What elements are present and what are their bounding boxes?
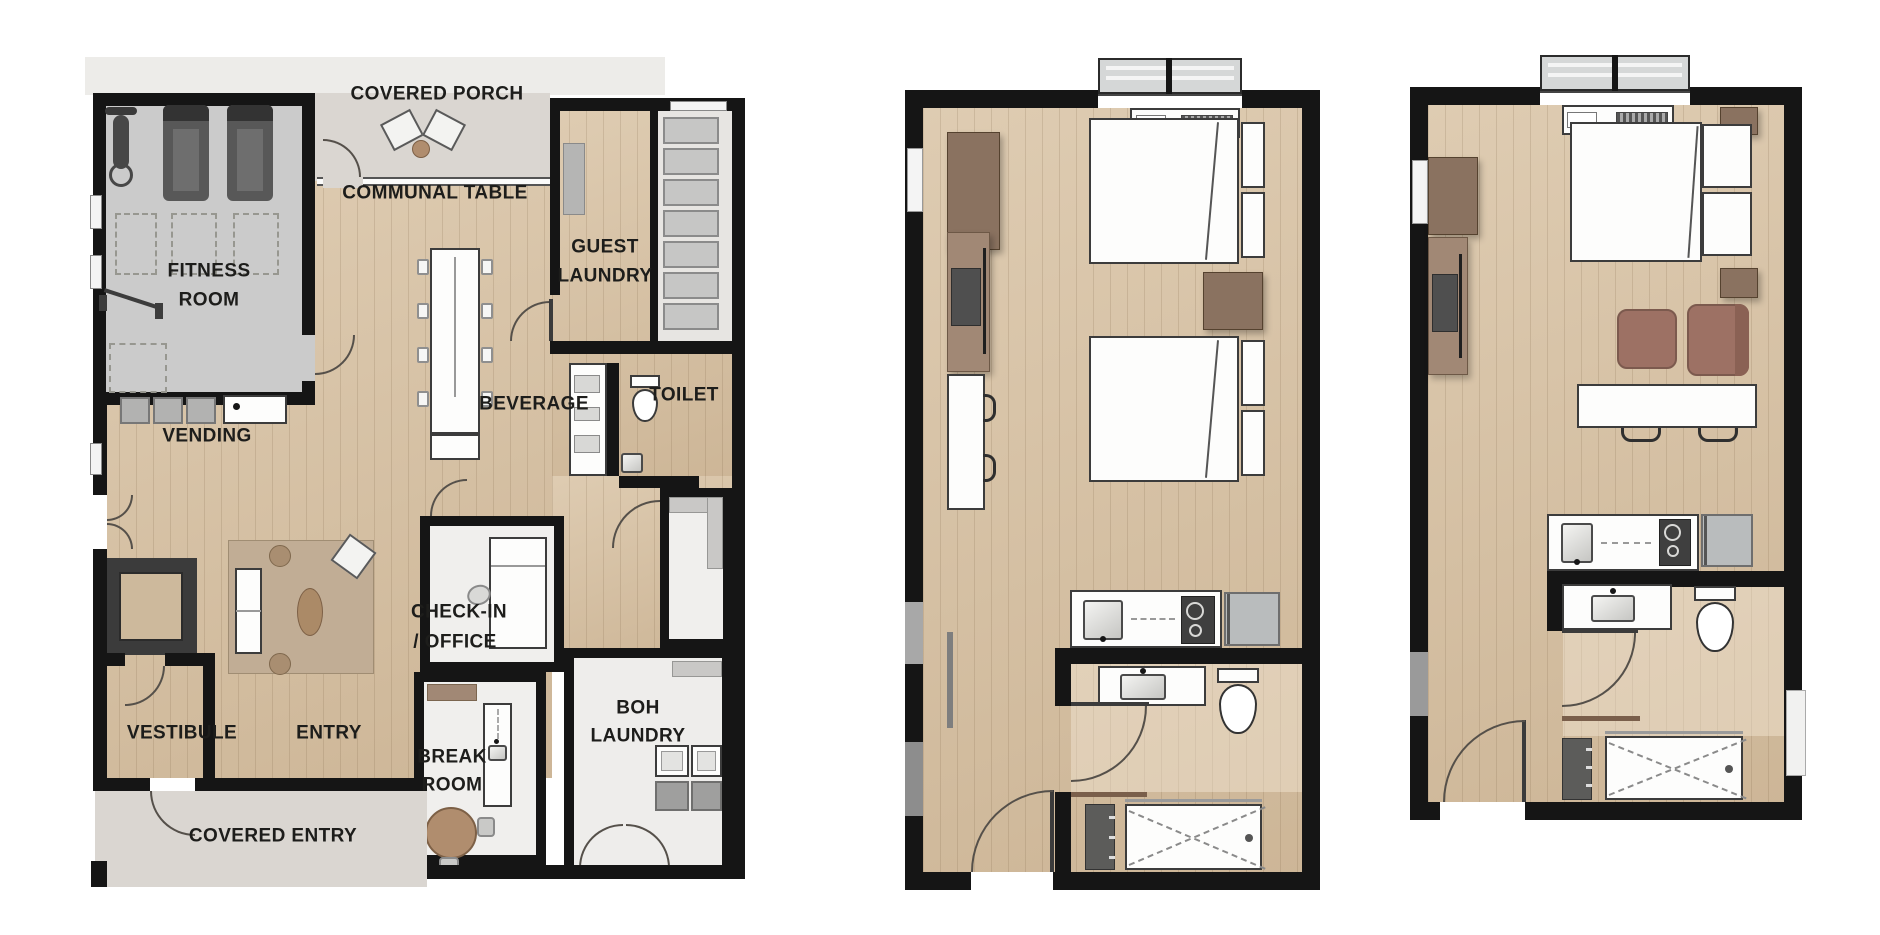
room-label-guest-laundry-line2: LAUNDRY	[558, 267, 653, 288]
vending-machine-icon	[186, 397, 216, 424]
wall	[1055, 792, 1071, 872]
room-label-check-in-line1: CHECK-IN	[411, 603, 507, 624]
bar-counter	[947, 374, 985, 510]
window-mullion	[1166, 58, 1172, 94]
headboard	[1702, 192, 1752, 256]
toilet-tank	[1694, 586, 1736, 601]
room-label-beverage: BEVERAGE	[479, 395, 589, 416]
room-label-toilet: TOILET	[649, 386, 719, 407]
tv-icon	[951, 268, 981, 326]
barbell-plate-icon	[99, 295, 107, 311]
room-label-vestibule: VESTIBULE	[127, 724, 237, 745]
laundry-door-leaf	[549, 299, 553, 341]
shelf-tick	[1586, 766, 1592, 769]
wall	[607, 363, 619, 476]
stool-icon	[1698, 428, 1738, 442]
room-label-check-in-line2: / OFFICE	[413, 633, 496, 654]
toilet-room-sink	[621, 453, 643, 473]
wall	[414, 865, 745, 879]
stool-icon	[983, 454, 996, 482]
pouf-icon	[269, 653, 291, 675]
fridge-handle-icon	[1227, 594, 1230, 644]
community-building-plan: COVERED PORCH COMMUNAL TABLE FITNESS ROO…	[85, 45, 745, 917]
room-label-covered-porch: COVERED PORCH	[350, 85, 523, 106]
wall	[95, 778, 150, 791]
ice-machine-counter	[223, 395, 287, 424]
room-label-vending: VENDING	[162, 427, 251, 448]
shower	[1125, 804, 1262, 870]
wall	[905, 872, 971, 890]
treadmill-belt-icon	[237, 129, 263, 191]
vending-machine-icon	[120, 397, 150, 424]
room-label-fitness-room-line1: FITNESS	[167, 262, 250, 283]
nightstand	[1203, 272, 1263, 330]
mini-fridge-icon	[1224, 592, 1280, 646]
dining-chair	[417, 303, 429, 319]
kitchen-sink	[1083, 600, 1123, 640]
dining-chair	[417, 347, 429, 363]
washer-icon	[663, 117, 719, 144]
shower-glass-line	[1125, 799, 1262, 802]
shower	[1605, 736, 1743, 800]
wall	[1525, 802, 1802, 820]
communal-table-bench	[430, 434, 480, 460]
threshold	[1071, 792, 1147, 797]
headboard	[1702, 124, 1752, 188]
dryer-icon	[663, 241, 719, 268]
dryer-icon	[691, 781, 722, 811]
tv-icon	[1432, 274, 1458, 332]
room-label-boh-laundry-line2: LAUNDRY	[591, 727, 686, 748]
dryer-icon	[663, 210, 719, 237]
room-label-communal-table: COMMUNAL TABLE	[342, 184, 527, 205]
sofa-cushion-line	[236, 610, 261, 612]
room-label-break-room-line1: BREAK	[417, 748, 487, 769]
wall-louver	[905, 602, 923, 664]
window-glazing	[907, 148, 923, 212]
dining-chair	[481, 303, 493, 319]
window-glazing	[670, 101, 727, 111]
exercise-bike-handle-icon	[105, 107, 137, 115]
room-label-boh-laundry-line1: BOH	[616, 699, 659, 720]
wall	[1055, 648, 1320, 664]
folding-counter	[563, 143, 585, 215]
wall	[1302, 90, 1320, 890]
shelf-tick	[1586, 784, 1592, 787]
room-label-break-room-line2: ROOM	[422, 776, 483, 797]
vanity-sink	[1120, 674, 1166, 700]
headboard	[1241, 410, 1265, 476]
wall	[1055, 648, 1071, 706]
shower-glass-line	[1605, 731, 1743, 734]
vanity-sink	[1591, 595, 1635, 622]
mirror-strip	[947, 632, 953, 728]
toilet-tank	[1217, 668, 1259, 683]
vending-machine-icon	[153, 397, 183, 424]
faucet-icon	[494, 739, 499, 744]
exercise-bike-wheel-icon	[109, 163, 133, 187]
wall	[1547, 571, 1563, 631]
faucet-icon	[1140, 668, 1146, 674]
exterior-shutter	[1786, 690, 1806, 776]
burner-icon	[1664, 524, 1681, 541]
bench-clearance	[109, 343, 167, 393]
window-glazing	[90, 443, 102, 475]
wall	[619, 476, 699, 488]
faucet-icon	[1574, 559, 1580, 565]
shower-drain-icon	[1725, 765, 1733, 773]
washer-door-icon	[661, 751, 683, 771]
dryer-icon	[663, 303, 719, 330]
burner-icon	[1189, 624, 1202, 637]
dining-chair	[417, 391, 429, 407]
utility-shaft-interior	[119, 572, 183, 641]
wall	[1410, 87, 1540, 105]
pouf-icon	[269, 545, 291, 567]
porch-table	[412, 140, 430, 158]
king-guestroom-plan	[1395, 42, 1810, 887]
fridge-handle-icon	[1704, 516, 1707, 565]
headboard	[1241, 122, 1265, 188]
break-sink	[488, 745, 507, 761]
break-table	[425, 807, 477, 859]
shelf-tick	[1109, 856, 1115, 859]
double-queen-guestroom-plan	[893, 42, 1340, 912]
wall	[905, 90, 1098, 108]
shower-drain-icon	[1245, 834, 1253, 842]
bar-table	[1577, 384, 1757, 428]
barbell-plate-icon	[155, 303, 163, 319]
stool-icon	[983, 394, 996, 422]
headboard	[1241, 340, 1265, 406]
wall-louver	[1410, 652, 1428, 716]
threshold	[1562, 716, 1640, 721]
counter-dash-line	[497, 709, 499, 739]
lounge-chair-back	[1735, 304, 1749, 376]
treadmill-hood-icon	[227, 105, 273, 121]
entrance-door-gap	[93, 495, 107, 549]
burner-icon	[1186, 602, 1204, 620]
coffee-machine-icon	[574, 375, 600, 393]
headboard	[1241, 192, 1265, 258]
break-shelf	[427, 684, 477, 701]
check-in-desk	[489, 537, 547, 649]
fitness-door-gap	[302, 335, 315, 381]
faucet-icon	[1100, 636, 1106, 642]
treadmill-belt-icon	[173, 129, 199, 191]
exercise-bike-icon	[113, 115, 129, 169]
wall	[650, 111, 658, 341]
shelf-tick	[1109, 816, 1115, 819]
coffee-machine-icon	[574, 435, 600, 453]
room-label-entry: ENTRY	[296, 724, 362, 745]
coffee-table	[297, 588, 323, 636]
washer-icon	[663, 179, 719, 206]
treadmill-hood-icon	[163, 105, 209, 121]
work-counter	[707, 497, 723, 569]
dining-chair	[481, 347, 493, 363]
mini-fridge-icon	[1701, 514, 1753, 567]
wall	[1053, 872, 1320, 890]
dresser	[1428, 157, 1478, 235]
lounge-chair	[1617, 309, 1677, 369]
kitchen-sink	[1561, 523, 1593, 563]
room-label-covered-entry: COVERED ENTRY	[189, 827, 357, 848]
burner-icon	[1667, 545, 1679, 557]
window-mullion	[1612, 55, 1618, 91]
dining-chair	[417, 259, 429, 275]
ice-machine-icon	[233, 403, 240, 410]
window-glazing	[1412, 160, 1428, 224]
washer-door-icon	[697, 751, 716, 771]
nightstand	[1720, 268, 1758, 298]
window-glazing	[90, 255, 102, 289]
dryer-icon	[655, 781, 689, 811]
stool-icon	[1621, 428, 1661, 442]
counter-dash-line	[1601, 542, 1651, 544]
desk-shelf-line	[491, 565, 545, 567]
break-chair	[477, 817, 495, 837]
faucet-icon	[1610, 588, 1616, 594]
room-label-fitness-room-line2: ROOM	[179, 291, 240, 312]
wall	[1410, 802, 1440, 820]
wall	[732, 98, 745, 878]
shelf-tick	[1109, 836, 1115, 839]
window-glazing	[90, 195, 102, 229]
king-bed	[1570, 122, 1702, 262]
washer-icon	[663, 148, 719, 175]
dining-chair	[481, 259, 493, 275]
shelf-tick	[1586, 748, 1592, 751]
wall	[550, 341, 732, 354]
wall-louver	[905, 742, 923, 816]
tv-screen-line	[983, 248, 986, 354]
communal-table-leaf-line	[454, 257, 456, 397]
boh-counter	[672, 661, 722, 677]
tv-screen-line	[1459, 254, 1462, 358]
corner-post	[91, 861, 107, 887]
equipment-clearance	[115, 213, 157, 275]
counter-dash-line	[1131, 618, 1175, 620]
room-label-guest-laundry-line1: GUEST	[571, 238, 638, 259]
floor-plan-sheet: COVERED PORCH COMMUNAL TABLE FITNESS ROO…	[0, 0, 1880, 935]
dryer-icon	[663, 272, 719, 299]
wall	[195, 778, 427, 791]
